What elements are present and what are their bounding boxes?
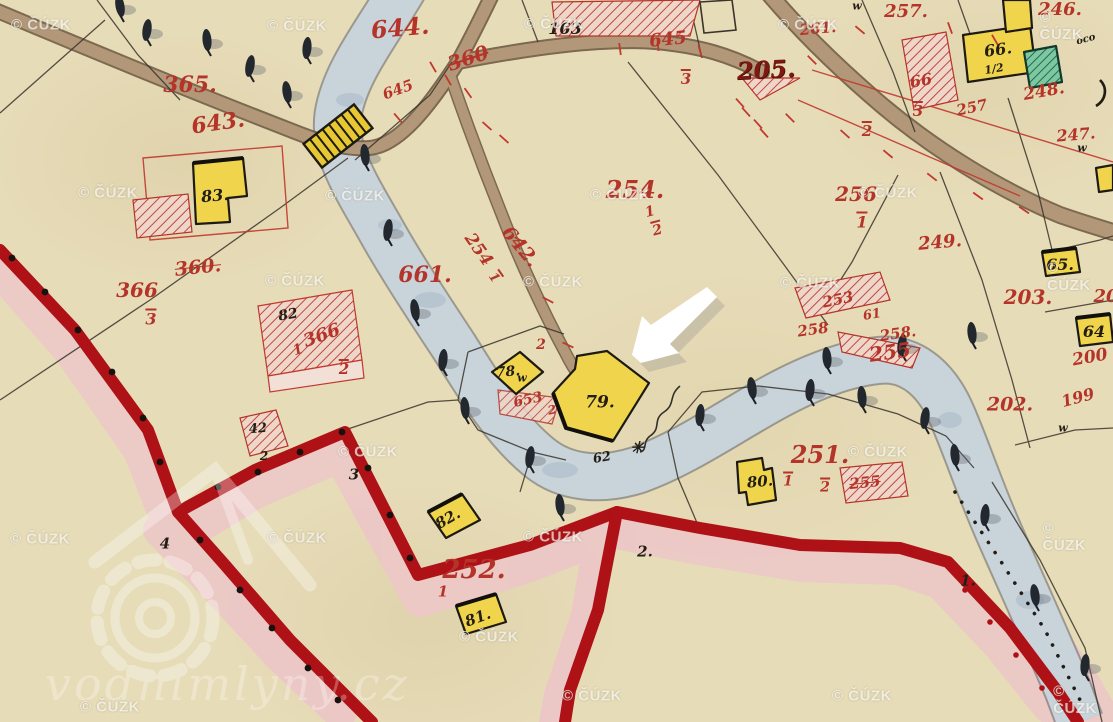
watermark: © ČÚZK: [524, 16, 584, 33]
annotation: 62: [592, 450, 612, 466]
building-number: 66.: [983, 40, 1013, 60]
watermark: © ČÚZK: [832, 688, 892, 705]
watermark: © ČÚZK: [562, 688, 622, 705]
parcel-subnumber: 3: [681, 69, 691, 87]
parcel-number: 255: [849, 474, 882, 492]
parcel-subnumber: 2: [536, 338, 546, 352]
watermark: © ČÚZK: [778, 17, 838, 34]
w-mark: w: [1077, 143, 1086, 154]
parcel-number: 360.: [174, 256, 222, 280]
parcel-number: 66: [909, 71, 934, 91]
watermark: © ČÚZK: [848, 444, 908, 461]
watermark: © ČÚZK: [78, 185, 138, 202]
parcel-subnumber: 1: [783, 472, 793, 489]
watermark: © ČÚZK: [1047, 260, 1091, 294]
w-mark: w: [1058, 423, 1067, 434]
watermark: © ČÚZK: [780, 275, 840, 292]
building-subnumber: 1/2: [984, 62, 1005, 76]
parcel-number: 252.: [442, 557, 505, 583]
parcel-subnumber: 2: [862, 121, 872, 139]
parcel-subnumber: 2: [820, 478, 830, 495]
building-number: 82: [277, 306, 299, 323]
boundary-point-number: 2: [260, 450, 268, 462]
parcel-number: 20: [1093, 288, 1113, 306]
building-number: 83.: [200, 187, 229, 205]
parcel-number: 205.: [736, 56, 796, 83]
watermark: © ČÚZK: [325, 188, 385, 205]
parcel-subnumber: 3: [145, 309, 156, 328]
ink-hook: [1096, 80, 1105, 106]
parcel-number: 365.: [163, 74, 217, 96]
w-mark: w: [517, 373, 526, 384]
mill-symbol: ✳: [630, 440, 643, 456]
watermark: © ČÚZK: [11, 17, 71, 34]
parcel-number: 203.: [1004, 287, 1053, 307]
map-scan: vodnimlyny.cz 365.643.644.3606456453205.…: [0, 0, 1113, 722]
watermark: © ČÚZK: [590, 187, 650, 204]
watermark: © ČÚZK: [338, 444, 398, 461]
building-number: 80.: [746, 473, 773, 490]
parcel-number: 257.: [884, 3, 928, 21]
parcel-number: 258: [796, 320, 829, 339]
parcel-subnumber: 2: [339, 359, 349, 377]
parcel-subnumber: 1: [438, 585, 448, 600]
building-66-wing: [1003, 0, 1032, 32]
map-canvas: vodnimlyny.cz: [0, 0, 1113, 722]
w-mark: w: [852, 1, 861, 12]
building-number: 64: [1083, 324, 1105, 340]
watermark: © ČÚZK: [267, 18, 327, 35]
parcel-number: 644.: [370, 13, 430, 42]
parcel-number: 249.: [917, 232, 962, 254]
watermark: © ČÚZK: [523, 274, 583, 291]
boundary-point-number: 4: [160, 537, 170, 552]
building-number: 79.: [585, 395, 615, 412]
watermark: © ČÚZK: [523, 529, 583, 546]
watermark: © ČÚZK: [1043, 520, 1090, 554]
watermark: © ČÚZK: [265, 273, 325, 290]
watermark: © ČÚZK: [10, 531, 70, 548]
parcel-number: 255: [868, 339, 912, 365]
watermark: © ČÚZK: [267, 530, 327, 547]
parcel-number: 202.: [987, 396, 1033, 415]
watermark: © ČÚZK: [858, 185, 918, 202]
building-edge: [1096, 165, 1113, 192]
boundary-point-number: 3: [349, 468, 359, 483]
boundary-point-number: 2.: [637, 545, 653, 560]
watermark: © ČÚZK: [80, 699, 140, 716]
watermark: © ČÚZK: [1040, 9, 1089, 43]
watermark: © ČÚZK: [459, 629, 519, 646]
parcel-number: 661.: [398, 264, 452, 286]
pointer-arrow: [632, 287, 725, 372]
parcel-subnumber: 1: [856, 212, 867, 231]
parcel-number: 645: [648, 29, 687, 51]
boundary-point-number: 1.: [960, 574, 976, 589]
parcel-number: 366: [116, 280, 158, 300]
parcel-subnumber: 3: [913, 101, 923, 119]
parcel-number: 643.: [190, 108, 246, 137]
parcel-number: 61: [862, 307, 882, 323]
parcel-number: 251.: [791, 443, 849, 467]
building-number: 42: [248, 422, 267, 437]
watermark: © ČÚZK: [1053, 683, 1097, 717]
parcel-number: 247.: [1056, 125, 1096, 144]
